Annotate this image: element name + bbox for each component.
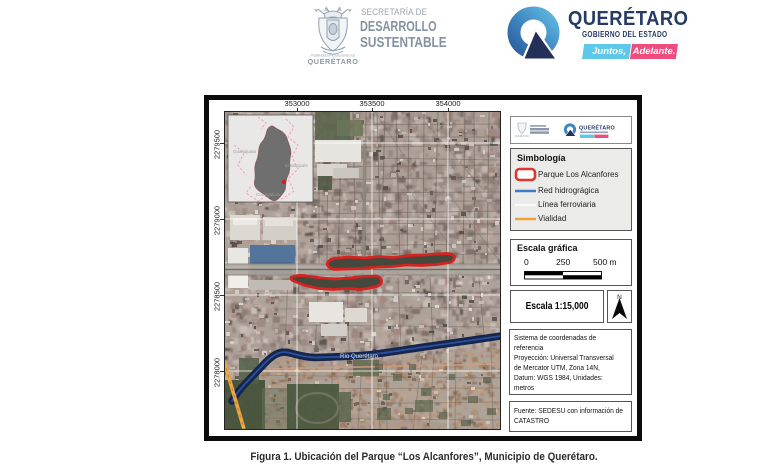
svg-text:Río Querétaro: Río Querétaro: [340, 354, 379, 360]
svg-text:El Marqués: El Marqués: [285, 163, 309, 168]
svg-text:QUERÉTARO: QUERÉTARO: [515, 135, 530, 138]
svg-text:Corregidora: Corregidora: [256, 192, 280, 197]
svg-text:QUERÉTARO: QUERÉTARO: [579, 124, 615, 132]
svg-text:Guanajuato: Guanajuato: [233, 149, 257, 154]
svg-text:QUERÉTARO: QUERÉTARO: [308, 57, 358, 65]
